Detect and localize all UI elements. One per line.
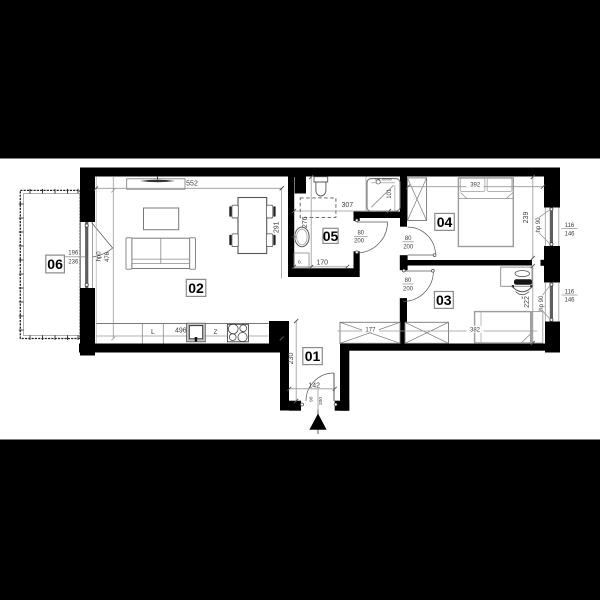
svg-text:200: 200 [318,397,324,405]
svg-text:146: 146 [564,231,575,237]
svg-text:382: 382 [470,328,481,334]
svg-text:170: 170 [316,259,328,266]
svg-text:142: 142 [308,383,320,390]
svg-text:146: 146 [564,298,575,304]
svg-text:291: 291 [274,221,281,233]
svg-text:Z: Z [214,330,218,336]
svg-text:307: 307 [341,202,353,209]
svg-text:PR. 60x90: PR. 60x90 [375,178,391,182]
svg-text:101: 101 [387,188,393,199]
svg-text:200: 200 [354,239,365,245]
svg-text:90: 90 [309,396,315,402]
svg-text:80: 80 [357,231,364,237]
svg-text:392: 392 [470,182,481,188]
svg-text:230: 230 [288,353,295,365]
svg-text:04: 04 [437,214,453,230]
svg-text:276: 276 [302,216,309,228]
svg-text:496: 496 [175,328,187,335]
svg-text:hp 90: hp 90 [539,295,545,311]
svg-text:222: 222 [524,296,531,308]
svg-text:o.: o. [298,260,302,266]
svg-text:200: 200 [403,244,414,250]
svg-text:hp0: hp0 [97,251,103,262]
svg-text:116: 116 [565,223,575,229]
svg-text:L: L [151,329,155,336]
svg-text:03: 03 [436,292,452,308]
svg-text:80: 80 [405,236,412,242]
svg-text:02: 02 [188,280,204,296]
svg-text:476: 476 [105,251,111,262]
svg-text:196: 196 [68,251,79,257]
svg-text:552: 552 [186,181,198,188]
svg-text:177: 177 [365,327,376,333]
svg-text:239: 239 [523,212,530,224]
svg-text:200: 200 [403,287,414,293]
svg-text:236: 236 [68,259,79,265]
svg-text:01: 01 [305,348,321,364]
svg-text:116: 116 [565,289,575,295]
svg-text:06: 06 [47,256,63,272]
svg-text:hp 90: hp 90 [536,217,542,233]
svg-text:80: 80 [405,278,412,284]
svg-text:05: 05 [323,228,339,244]
